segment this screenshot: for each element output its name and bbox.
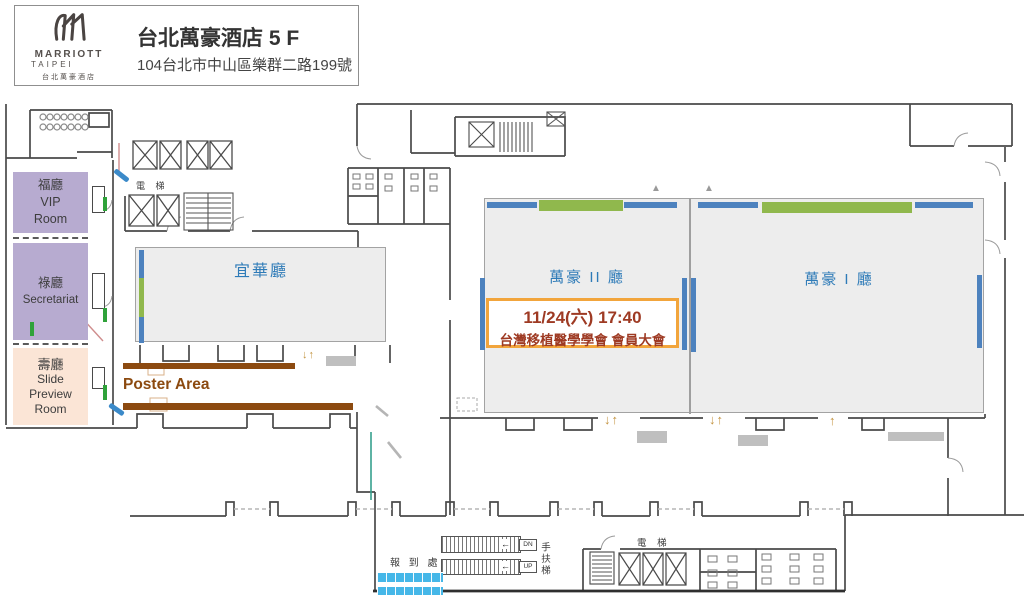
room-slide-name-cn: 壽廳: [37, 357, 63, 372]
escalator-label: 手扶梯: [537, 542, 551, 582]
room-secretariat: 祿廳 Secretariat: [13, 243, 88, 340]
registration-desk: [377, 586, 443, 595]
elevator-label-bottom: 電 梯: [637, 535, 671, 549]
poster-board-bar: [123, 403, 353, 410]
floor-mat: [637, 431, 667, 443]
escalator-arrow-icon: ←: [501, 539, 510, 549]
stage-marker-green: [762, 202, 912, 213]
room-marriott2-label: 萬豪 II 廳: [527, 266, 647, 287]
door-marker-blue: [698, 202, 758, 208]
dashed-marker-rect: [457, 398, 477, 411]
door-marker-green: [103, 197, 107, 211]
cloakroom-hooks-icon: [40, 114, 88, 130]
door-marker-blue: [487, 202, 537, 208]
room-yihua-label: 宜華廳: [201, 257, 321, 281]
room-vip-name-cn: 福廳: [38, 177, 63, 194]
elevator-bank-bottom-icon: [590, 552, 686, 585]
escalator-arrow-icon: ←: [501, 561, 510, 571]
floor-plan-page: MARRIOTT TAIPEI 台北萬豪酒店 台北萬豪酒店 5 F 104台北市…: [0, 0, 1024, 597]
brand-chinese: 台北萬豪酒店: [23, 72, 115, 82]
door-marker-blue: [480, 278, 485, 350]
room-secretariat-name-en: Secretariat: [23, 292, 79, 309]
door-marker-green: [103, 308, 107, 322]
triangle-marker: ▲: [704, 183, 714, 194]
restroom-stalls-bottom-icon: [708, 554, 823, 588]
registration-label: 報 到 處: [390, 554, 441, 569]
poster-area-label: Poster Area: [123, 376, 209, 394]
header-card: MARRIOTT TAIPEI 台北萬豪酒店 台北萬豪酒店 5 F 104台北市…: [14, 5, 359, 86]
event-datetime: 11/24(六) 17:40: [489, 303, 676, 328]
escalator-up-tag: UP: [519, 561, 537, 573]
room-slide-name-en1: Slide: [37, 372, 64, 387]
room-secretariat-name-cn: 祿廳: [38, 275, 63, 292]
door-leaf: [92, 273, 105, 309]
stairs-top-center-icon: [469, 112, 565, 152]
stage-marker-green: [539, 200, 623, 211]
event-annotation: 11/24(六) 17:40 台灣移植醫學學會 會員大會: [486, 298, 679, 348]
floor-title: 台北萬豪酒店 5 F: [137, 22, 299, 52]
escalator-dn-tag: DN: [519, 539, 537, 551]
floor-mat: [738, 435, 768, 446]
door-marker-blue: [682, 278, 687, 350]
up-arrow: ↑: [829, 414, 837, 427]
door-marker-blue: [139, 250, 144, 278]
door-marker-blue: [139, 317, 144, 343]
registration-desk: [377, 572, 443, 582]
room-divider-dashed: [13, 343, 88, 345]
floor-mat: [888, 432, 944, 441]
stage-marker-green: [139, 278, 144, 317]
room-slide-name-en3: Room: [34, 402, 66, 417]
room-vip: 福廳 VIP Room: [13, 172, 88, 233]
hotel-address: 104台北市中山區樂群二路199號: [137, 54, 352, 75]
updown-arrows: ↓↑: [709, 413, 724, 426]
door-marker-green: [30, 322, 34, 336]
stairs-top-left-icon: [184, 193, 233, 230]
triangle-marker: ▲: [651, 183, 661, 194]
door-marker-blue: [915, 202, 973, 208]
room-slide-name-en2: Preview: [29, 387, 72, 402]
event-title: 台灣移植醫學學會 會員大會: [489, 329, 676, 349]
door-marker-blue: [691, 278, 696, 352]
brand-name: MARRIOTT: [23, 49, 115, 60]
room-vip-name-en2: Room: [34, 211, 67, 228]
marriott-logo: MARRIOTT TAIPEI 台北萬豪酒店: [23, 9, 115, 82]
room-vip-name-en1: VIP: [40, 194, 60, 211]
poster-board-bar: [123, 363, 295, 369]
room-marriott1-label: 萬豪 I 廳: [779, 268, 899, 289]
updown-arrows: ↓↑: [302, 349, 315, 362]
marriott-m-icon: [47, 9, 91, 43]
door-marker-green: [103, 385, 107, 400]
brand-city: TAIPEI: [23, 60, 115, 69]
gray-diagonals: [376, 406, 401, 458]
room-slide-preview: 壽廳 Slide Preview Room: [13, 348, 88, 425]
floor-mat: [326, 356, 356, 366]
updown-arrows: ↓↑: [604, 413, 619, 426]
door-marker-blue: [977, 275, 982, 348]
room-divider-dashed: [13, 237, 88, 239]
door-marker-blue: [624, 202, 677, 208]
elevator-label-top: 電 梯: [136, 179, 169, 192]
